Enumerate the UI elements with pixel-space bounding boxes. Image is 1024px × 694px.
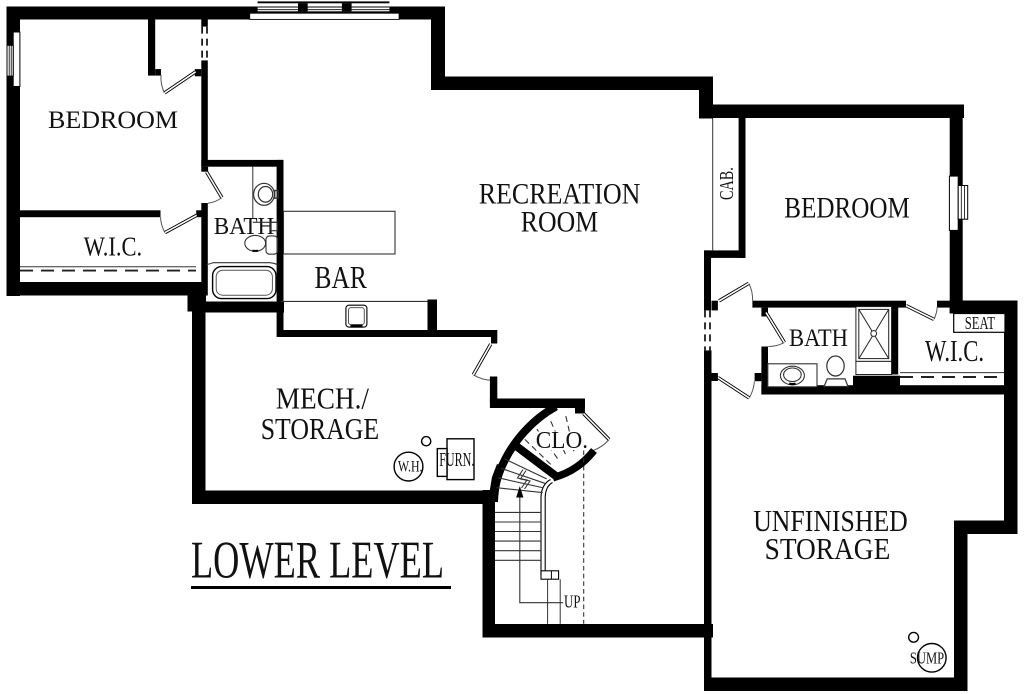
- svg-text:W.I.C.: W.I.C.: [84, 231, 143, 261]
- svg-text:W.I.C.: W.I.C.: [925, 334, 984, 368]
- svg-text:ROOM: ROOM: [521, 206, 598, 238]
- svg-text:BATH: BATH: [789, 324, 848, 352]
- svg-text:CAB.: CAB.: [716, 167, 738, 200]
- svg-text:UP: UP: [564, 591, 581, 611]
- svg-text:CLO.: CLO.: [536, 428, 588, 454]
- svg-text:FURN.: FURN.: [439, 449, 474, 471]
- svg-text:BAR: BAR: [315, 259, 368, 295]
- svg-text:SUMP: SUMP: [910, 649, 944, 668]
- svg-text:STORAGE: STORAGE: [261, 412, 380, 446]
- svg-text:BEDROOM: BEDROOM: [784, 192, 910, 224]
- svg-text:SEAT: SEAT: [965, 313, 995, 333]
- svg-text:BEDROOM: BEDROOM: [48, 106, 178, 134]
- svg-text:STORAGE: STORAGE: [765, 532, 891, 566]
- svg-text:W.H.: W.H.: [398, 458, 423, 476]
- svg-text:BATH: BATH: [214, 214, 274, 240]
- svg-text:LOWER LEVEL: LOWER LEVEL: [191, 531, 444, 590]
- svg-text:MECH./: MECH./: [276, 382, 370, 416]
